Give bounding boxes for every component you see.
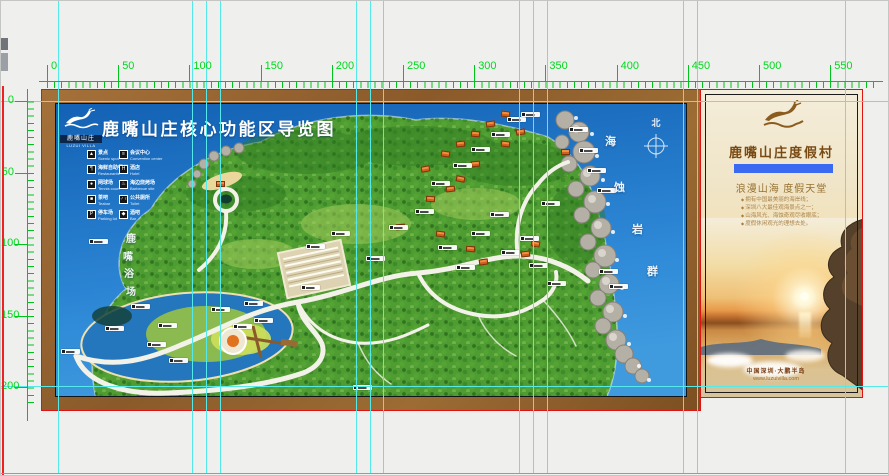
ruler-label: 250 [407, 61, 425, 72]
logo-name-en: LUZUI VILLA [58, 143, 104, 148]
chip-icon [234, 325, 237, 328]
map-label-chip [61, 349, 80, 354]
legend-item-text: 酒店Hotel [130, 165, 140, 176]
legend-item-icon: ♨ [119, 180, 128, 189]
legend-item: ♂♀公共厕所Toilet [119, 195, 162, 210]
ruler-label: 350 [549, 61, 567, 72]
map-label-chip [520, 236, 539, 241]
ruler-vertical[interactable]: 050100150200 [1, 89, 39, 434]
map-label-chip [541, 201, 560, 206]
map-label-chip [456, 265, 475, 270]
map-label-chip [306, 244, 325, 249]
map-label-chips-layer [56, 104, 686, 396]
poster-bullet: 拥有中国最美丽的海岸线； [741, 196, 822, 204]
map-label-chip [609, 284, 628, 289]
ruler-major-tick [189, 65, 190, 81]
place-label-char: 群 [647, 263, 658, 279]
chip-icon [332, 232, 335, 235]
ruler-label: 550 [834, 61, 852, 72]
chip-icon [159, 324, 162, 327]
chip-icon [610, 285, 613, 288]
chip-icon [542, 202, 545, 205]
map-label-chip [547, 281, 566, 286]
ruler-horizontal[interactable]: 050100150200250300350400450500550 [1, 59, 889, 89]
chip-icon [472, 232, 475, 235]
legend-item: ≡会议中心Convention center [119, 150, 162, 165]
legend-item: H酒店Hotel [119, 165, 162, 180]
poster-website: www.luzuivilla.com [701, 376, 851, 383]
chip-icon [521, 237, 524, 240]
ruler-minor-ticks [28, 101, 34, 403]
map-legend: ▲景点Scenic spot¶海鲜自助餐厅Restaurants●网球场Tenn… [87, 150, 237, 230]
map-label-chip [521, 112, 540, 117]
legend-item-text: 海边烧烤场Barbecue site [130, 180, 155, 191]
chip-icon [106, 327, 109, 330]
map-label-chip [233, 324, 252, 329]
map-label-chip [438, 245, 457, 250]
ruler-major-tick [759, 65, 760, 81]
chip-icon [416, 210, 419, 213]
chip-icon [62, 350, 65, 353]
legend-item-text: 酒吧Bar [130, 210, 140, 221]
ruler-major-tick [47, 65, 48, 81]
map-label-chip [569, 127, 588, 132]
poster-bullet: 深圳八大最佳观海景点之一； [741, 204, 822, 212]
ruler-label: 150 [265, 61, 283, 72]
legend-item-text: 茶吧Teabar [98, 195, 110, 206]
map-label-chip [587, 168, 606, 173]
place-label-char: 场 [126, 283, 136, 298]
chip-icon [457, 266, 460, 269]
window-bottom-edge [1, 473, 889, 474]
ruler-major-tick [118, 65, 119, 81]
ruler-label: 100 [193, 61, 211, 72]
map-title: 鹿嘴山庄核心功能区导览图 [102, 115, 336, 140]
chip-icon [255, 319, 258, 322]
ruler-major-tick [403, 65, 404, 81]
poster-deer-logo-icon [759, 100, 805, 130]
map-label-chip [491, 132, 510, 137]
map-label-chip [471, 231, 490, 236]
poster-subtitle: 浪漫山海 度假天堂 [701, 180, 862, 195]
deer-logo-icon [62, 108, 100, 130]
legend-item: ◆酒吧Bar [119, 210, 162, 225]
map-content: 鹿嘴山庄 LUZUI VILLA 鹿嘴山庄核心功能区导览图 ▲景点Scenic … [55, 103, 687, 397]
chip-icon [132, 305, 135, 308]
artwork-poster[interactable]: 鹿嘴山庄度假村 浪漫山海 度假天堂 拥有中国最美丽的海岸线；深圳八大最佳观海景点… [700, 89, 863, 398]
guide-line-horizontal[interactable] [1, 101, 889, 102]
ruler-label: 0 [51, 61, 57, 72]
map-logo: 鹿嘴山庄 LUZUI VILLA [58, 108, 104, 156]
legend-item-text: 会议中心Convention center [130, 150, 162, 161]
chip-icon [212, 308, 215, 311]
chip-icon [170, 359, 173, 362]
legend-item-icon: ▲ [87, 150, 96, 159]
legend-item-icon: ≡ [119, 150, 128, 159]
map-label-chip [169, 358, 188, 363]
map-label-chip [471, 147, 490, 152]
chip-icon [600, 270, 603, 273]
guide-line-horizontal[interactable] [1, 386, 889, 387]
chip-icon [302, 286, 305, 289]
legend-column: ≡会议中心Convention centerH酒店Hotel♨海边烧烤场Barb… [119, 150, 162, 225]
chip-icon [439, 246, 442, 249]
chip-icon [598, 189, 601, 192]
poster-bullet: 山海风光、海蚀奇观尽收眼底； [741, 212, 822, 220]
accent-bar [734, 164, 833, 173]
toolbox-fragment [1, 53, 8, 71]
chip-icon [502, 251, 505, 254]
place-label-char: 岩 [632, 221, 643, 237]
ruler-label: 300 [478, 61, 496, 72]
chip-icon [148, 343, 151, 346]
map-label-chip [415, 209, 434, 214]
chip-icon [472, 148, 475, 151]
ruler-major-tick [830, 65, 831, 81]
toolbox-fragment [1, 38, 8, 50]
poster-footer: 中国深圳·大鹏半岛 www.luzuivilla.com [701, 369, 851, 383]
poster-location-line: 中国深圳·大鹏半岛 [701, 369, 851, 376]
ruler-major-tick [545, 65, 546, 81]
ruler-major-tick [261, 65, 262, 81]
map-label-chip [254, 318, 273, 323]
design-canvas: 050100150200250300350400450500550 050100… [0, 0, 889, 476]
legend-item-icon: ■ [87, 195, 96, 204]
map-label-chip [501, 250, 520, 255]
chip-icon [570, 128, 573, 131]
legend-item-icon: P [87, 210, 96, 219]
logo-name-cn: 鹿嘴山庄 [60, 135, 102, 143]
legend-label-en: Barbecue site [130, 186, 155, 191]
left-edge-red-line [2, 86, 4, 476]
poster-bullet: 度假休闲观光的理想去处。 [741, 220, 822, 228]
place-label-char: 蚀 [614, 179, 625, 195]
legend-item-icon: ¶ [87, 165, 96, 174]
sea-rocks [808, 219, 863, 391]
map-label-chip [490, 212, 509, 217]
ruler-major-tick [688, 65, 689, 81]
chip-icon [307, 245, 310, 248]
poster-bullet-list: 拥有中国最美丽的海岸线；深圳八大最佳观海景点之一；山海风光、海蚀奇观尽收眼底；度… [741, 196, 822, 228]
chip-icon [90, 240, 93, 243]
map-label-chip [431, 181, 450, 186]
place-label-char: 嘴 [123, 248, 133, 263]
legend-item: ♨海边烧烤场Barbecue site [119, 180, 162, 195]
ruler-major-tick [15, 173, 27, 174]
legend-item-text: 景点Scenic spot [98, 150, 119, 161]
map-label-chip [301, 285, 320, 290]
legend-label-en: Bar [130, 216, 140, 221]
ruler-major-tick [617, 65, 618, 81]
map-label-chip [105, 326, 124, 331]
map-label-chip [147, 342, 166, 347]
map-label-chip [453, 163, 472, 168]
map-label-chip [579, 148, 598, 153]
chip-icon [522, 113, 525, 116]
legend-item-icon: ♂♀ [119, 195, 128, 204]
legend-label-en: Parking lot [98, 216, 117, 221]
legend-label-en: Teabar [98, 201, 110, 206]
chip-icon [492, 133, 495, 136]
legend-label-en: Convention center [130, 156, 162, 161]
chip-icon [454, 164, 457, 167]
ruler-minor-ticks [47, 82, 874, 88]
legend-item-text: 停车场Parking lot [98, 210, 117, 221]
ruler-label: 450 [692, 61, 710, 72]
ruler-label: 50 [122, 61, 134, 72]
map-label-chip [389, 225, 408, 230]
artwork-map-sign[interactable]: 鹿嘴山庄 LUZUI VILLA 鹿嘴山庄核心功能区导览图 ▲景点Scenic … [41, 89, 701, 411]
legend-label-en: Hotel [130, 171, 140, 176]
legend-item-text: 公共厕所Toilet [130, 195, 150, 206]
legend-label-en: Scenic spot [98, 156, 119, 161]
map-label-chip [529, 263, 548, 268]
legend-label-en: Toilet [130, 201, 150, 206]
legend-item-icon: H [119, 165, 128, 174]
ruler-label: 500 [763, 61, 781, 72]
chip-icon [580, 149, 583, 152]
map-label-chip [89, 239, 108, 244]
compass-north-label: 北 [636, 116, 676, 129]
compass: 北 [636, 116, 676, 129]
ruler-label: 400 [621, 61, 639, 72]
chip-icon [548, 282, 551, 285]
legend-item-text: 网球场Tennis court [98, 180, 120, 191]
map-label-chip [158, 323, 177, 328]
chip-icon [508, 118, 511, 121]
legend-label-en: Tennis court [98, 186, 120, 191]
place-label-char: 浴 [124, 265, 134, 280]
legend-item-icon: ● [87, 180, 96, 189]
poster-title: 鹿嘴山庄度假村 [701, 142, 862, 161]
map-label-chip [599, 269, 618, 274]
ruler-major-tick [474, 65, 475, 81]
chip-icon [491, 213, 494, 216]
map-label-chip [244, 301, 263, 306]
map-label-chip [131, 304, 150, 309]
ruler-major-tick [332, 65, 333, 81]
map-label-chip [331, 231, 350, 236]
place-label-char: 鹿 [126, 230, 136, 245]
chip-icon [245, 302, 248, 305]
chip-icon [588, 169, 591, 172]
chip-icon [432, 182, 435, 185]
legend-item-icon: ◆ [119, 210, 128, 219]
chip-icon [390, 226, 393, 229]
ruler-label: 200 [336, 61, 354, 72]
place-label-char: 海 [605, 133, 616, 149]
map-label-chip [507, 117, 526, 122]
ruler-major-tick [15, 101, 27, 102]
